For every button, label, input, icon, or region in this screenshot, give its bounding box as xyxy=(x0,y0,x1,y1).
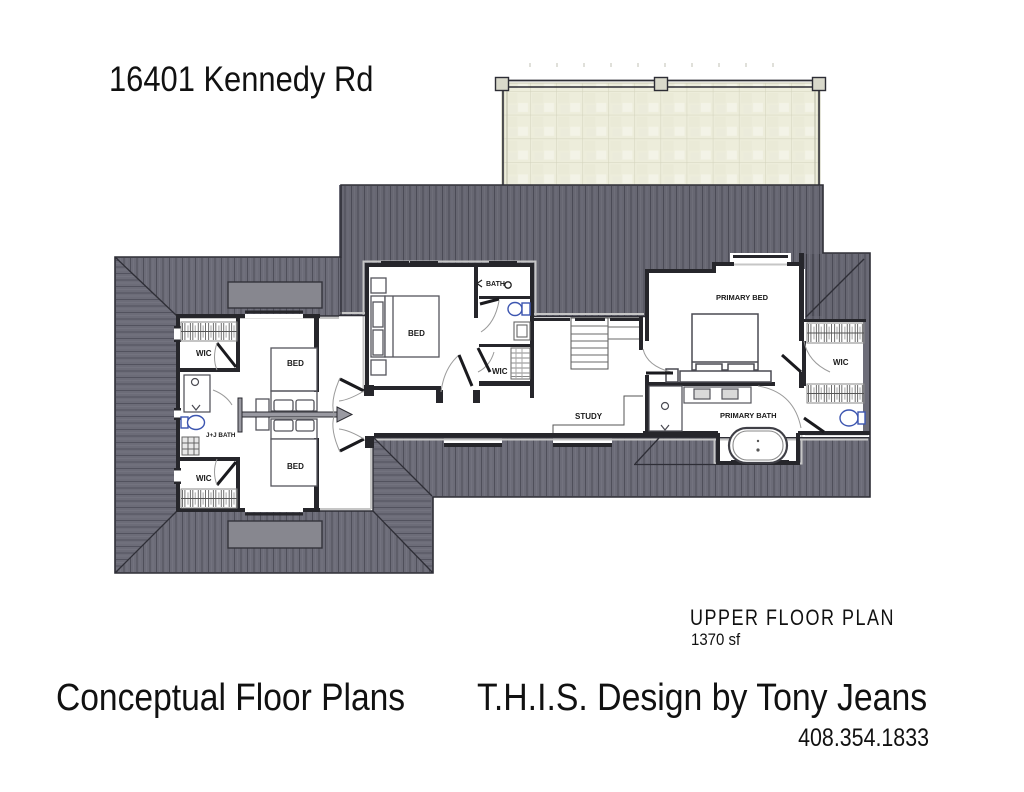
svg-text:408.354.1833: 408.354.1833 xyxy=(798,723,929,751)
svg-text:BED: BED xyxy=(408,329,425,338)
svg-text:WIC: WIC xyxy=(196,349,212,358)
svg-text:1370 sf: 1370 sf xyxy=(691,631,741,649)
svg-text:STUDY: STUDY xyxy=(575,412,603,421)
svg-text:UPPER FLOOR PLAN: UPPER FLOOR PLAN xyxy=(690,606,895,630)
svg-text:Conceptual Floor Plans: Conceptual Floor Plans xyxy=(56,676,405,718)
svg-text:PRIMARY BATH: PRIMARY BATH xyxy=(720,411,777,420)
svg-text:J+J BATH: J+J BATH xyxy=(206,432,236,439)
svg-text:BED: BED xyxy=(287,462,304,471)
svg-text:16401 Kennedy Rd: 16401 Kennedy Rd xyxy=(109,60,373,99)
svg-text:BED: BED xyxy=(287,359,304,368)
svg-text:T.H.I.S. Design by Tony Jeans: T.H.I.S. Design by Tony Jeans xyxy=(477,676,927,718)
svg-text:WIC: WIC xyxy=(492,367,508,376)
svg-text:WIC: WIC xyxy=(833,358,849,367)
svg-text:BATH: BATH xyxy=(486,281,505,288)
svg-text:WIC: WIC xyxy=(196,474,212,483)
svg-text:PRIMARY BED: PRIMARY BED xyxy=(716,293,769,302)
